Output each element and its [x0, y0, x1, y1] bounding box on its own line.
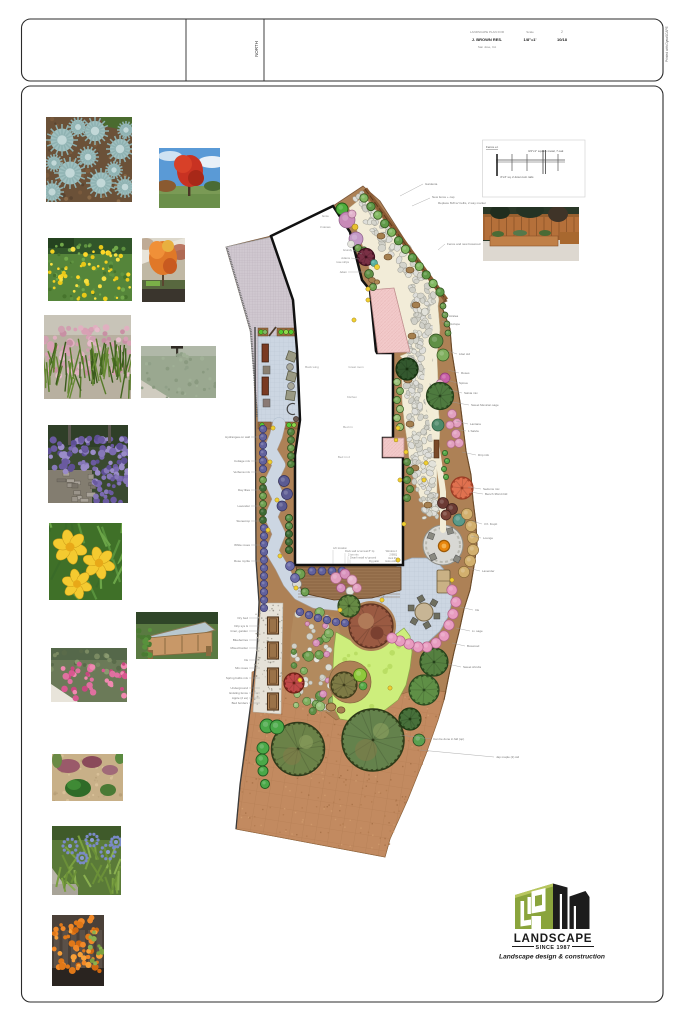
svg-text:New fence + cap: New fence + cap — [432, 195, 455, 199]
svg-text:Salvia mix: Salvia mix — [464, 391, 478, 395]
svg-text:Lavender: Lavender — [482, 569, 495, 573]
svg-text:Scale: Scale — [526, 30, 534, 34]
svg-text:Bed borders: Bed borders — [232, 701, 249, 705]
svg-text:10/18: 10/18 — [557, 37, 568, 42]
svg-text:Huts color: Huts color — [385, 559, 397, 563]
svg-text:1/8"=1': 1/8"=1' — [524, 37, 537, 42]
svg-text:Sedums mix: Sedums mix — [483, 487, 500, 491]
svg-text:Fence el.: Fence el. — [486, 145, 499, 149]
svg-text:Lilac std: Lilac std — [459, 352, 470, 356]
svg-text:3 ft. firepit: 3 ft. firepit — [484, 522, 497, 526]
svg-text:Great room: Great room — [348, 365, 364, 369]
svg-text:Bench 36x14 bld: Bench 36x14 bld — [485, 492, 508, 496]
svg-text:Lantana: Lantana — [470, 422, 481, 426]
svg-text:Printed with DynaSCAPE: Printed with DynaSCAPE — [665, 26, 669, 62]
svg-text:Flg patio: Flg patio — [369, 559, 380, 563]
svg-text:Vent lily: Vent lily — [388, 556, 398, 560]
svg-text:Liriope: Liriope — [451, 322, 460, 326]
svg-text:Iris: Iris — [475, 608, 479, 612]
svg-text:2: 2 — [561, 30, 563, 34]
svg-text:4"x4" sq. 2 down turn rails: 4"x4" sq. 2 down turn rails — [500, 175, 534, 179]
svg-text:Gardenia: Gardenia — [425, 182, 438, 186]
svg-text:Day lilies: Day lilies — [238, 488, 251, 492]
svg-text:Azalea: Azalea — [449, 314, 459, 318]
svg-text:Sweet Mexican sage: Sweet Mexican sage — [471, 403, 499, 407]
svg-text:3 stones: 3 stones — [320, 225, 331, 229]
svg-text:Back wing: Back wing — [305, 365, 319, 369]
svg-text:Replace 8x8 w/ trellis, 2 way: Replace 8x8 w/ trellis, 2 way marker — [438, 201, 486, 205]
svg-text:Existing fence: Existing fence — [229, 691, 248, 695]
svg-text:Apple (2 es): Apple (2 es) — [232, 696, 248, 700]
svg-text:Mixed border: Mixed border — [230, 646, 248, 650]
svg-text:1 Salvia: 1 Salvia — [468, 429, 479, 433]
svg-text:Lt. sage: Lt. sage — [472, 629, 483, 633]
svg-text:NORTH: NORTH — [254, 41, 259, 57]
svg-text:San Jose, CA: San Jose, CA — [478, 45, 496, 49]
svg-text:timer, garden: timer, garden — [230, 629, 248, 633]
svg-text:Hydrangea on wall: Hydrangea on wall — [225, 435, 250, 439]
svg-text:LANDSCAPE: LANDSCAPE — [514, 932, 592, 945]
svg-text:3/4"x1" square metal, 7 oak: 3/4"x1" square metal, 7 oak — [528, 149, 564, 153]
svg-text:Lavender: Lavender — [237, 504, 250, 508]
svg-text:Adam: Adam — [340, 270, 348, 274]
svg-text:Stonecrop: Stonecrop — [236, 519, 250, 523]
svg-text:Blueberries: Blueberries — [233, 638, 249, 642]
svg-text:Bed rm 2: Bed rm 2 — [338, 455, 351, 459]
svg-text:Grundy: Grundy — [343, 248, 353, 252]
svg-text:Can be done in fall (op): Can be done in fall (op) — [433, 737, 464, 741]
svg-text:Dry bed: Dry bed — [237, 616, 248, 620]
svg-text:Bed rm: Bed rm — [343, 425, 353, 429]
svg-text:Jap maple (2) std: Jap maple (2) std — [496, 755, 520, 759]
svg-text:Landscape design & constructio: Landscape design & construction — [499, 954, 605, 961]
svg-text:Drip info: Drip info — [478, 453, 490, 457]
svg-text:White roses: White roses — [234, 543, 250, 547]
svg-text:Window 2: Window 2 — [386, 549, 398, 553]
svg-text:fence: fence — [322, 214, 329, 218]
svg-text:Lounge: Lounge — [483, 536, 493, 540]
svg-text:Fence and new boxwood: Fence and new boxwood — [447, 242, 481, 246]
svg-text:Kitchen: Kitchen — [347, 395, 357, 399]
svg-text:Boxwood: Boxwood — [467, 644, 480, 648]
svg-text:Spring bulbs mix: Spring bulbs mix — [226, 676, 249, 680]
svg-text:Spirea: Spirea — [459, 381, 468, 385]
svg-text:Sweet shrubs: Sweet shrubs — [463, 665, 482, 669]
svg-text:Verbena mix: Verbena mix — [233, 470, 250, 474]
svg-text:Roses: Roses — [461, 371, 470, 375]
svg-text:Rose myrtle: Rose myrtle — [234, 559, 250, 563]
svg-text:Underground: Underground — [230, 686, 248, 690]
svg-text:Iris: Iris — [244, 658, 248, 662]
svg-text:2 BBQ: 2 BBQ — [389, 552, 397, 556]
svg-text:Cottage mix: Cottage mix — [234, 459, 251, 463]
svg-text:J. BROWN RES.: J. BROWN RES. — [472, 37, 502, 42]
svg-text:Drip sys &: Drip sys & — [234, 624, 248, 628]
svg-text:rose strips: rose strips — [336, 260, 350, 264]
svg-text:SINCE 1987: SINCE 1987 — [536, 945, 571, 951]
svg-text:LANDSCAPE PLAN FOR: LANDSCAPE PLAN FOR — [470, 30, 505, 34]
svg-text:Mix roses: Mix roses — [235, 666, 248, 670]
